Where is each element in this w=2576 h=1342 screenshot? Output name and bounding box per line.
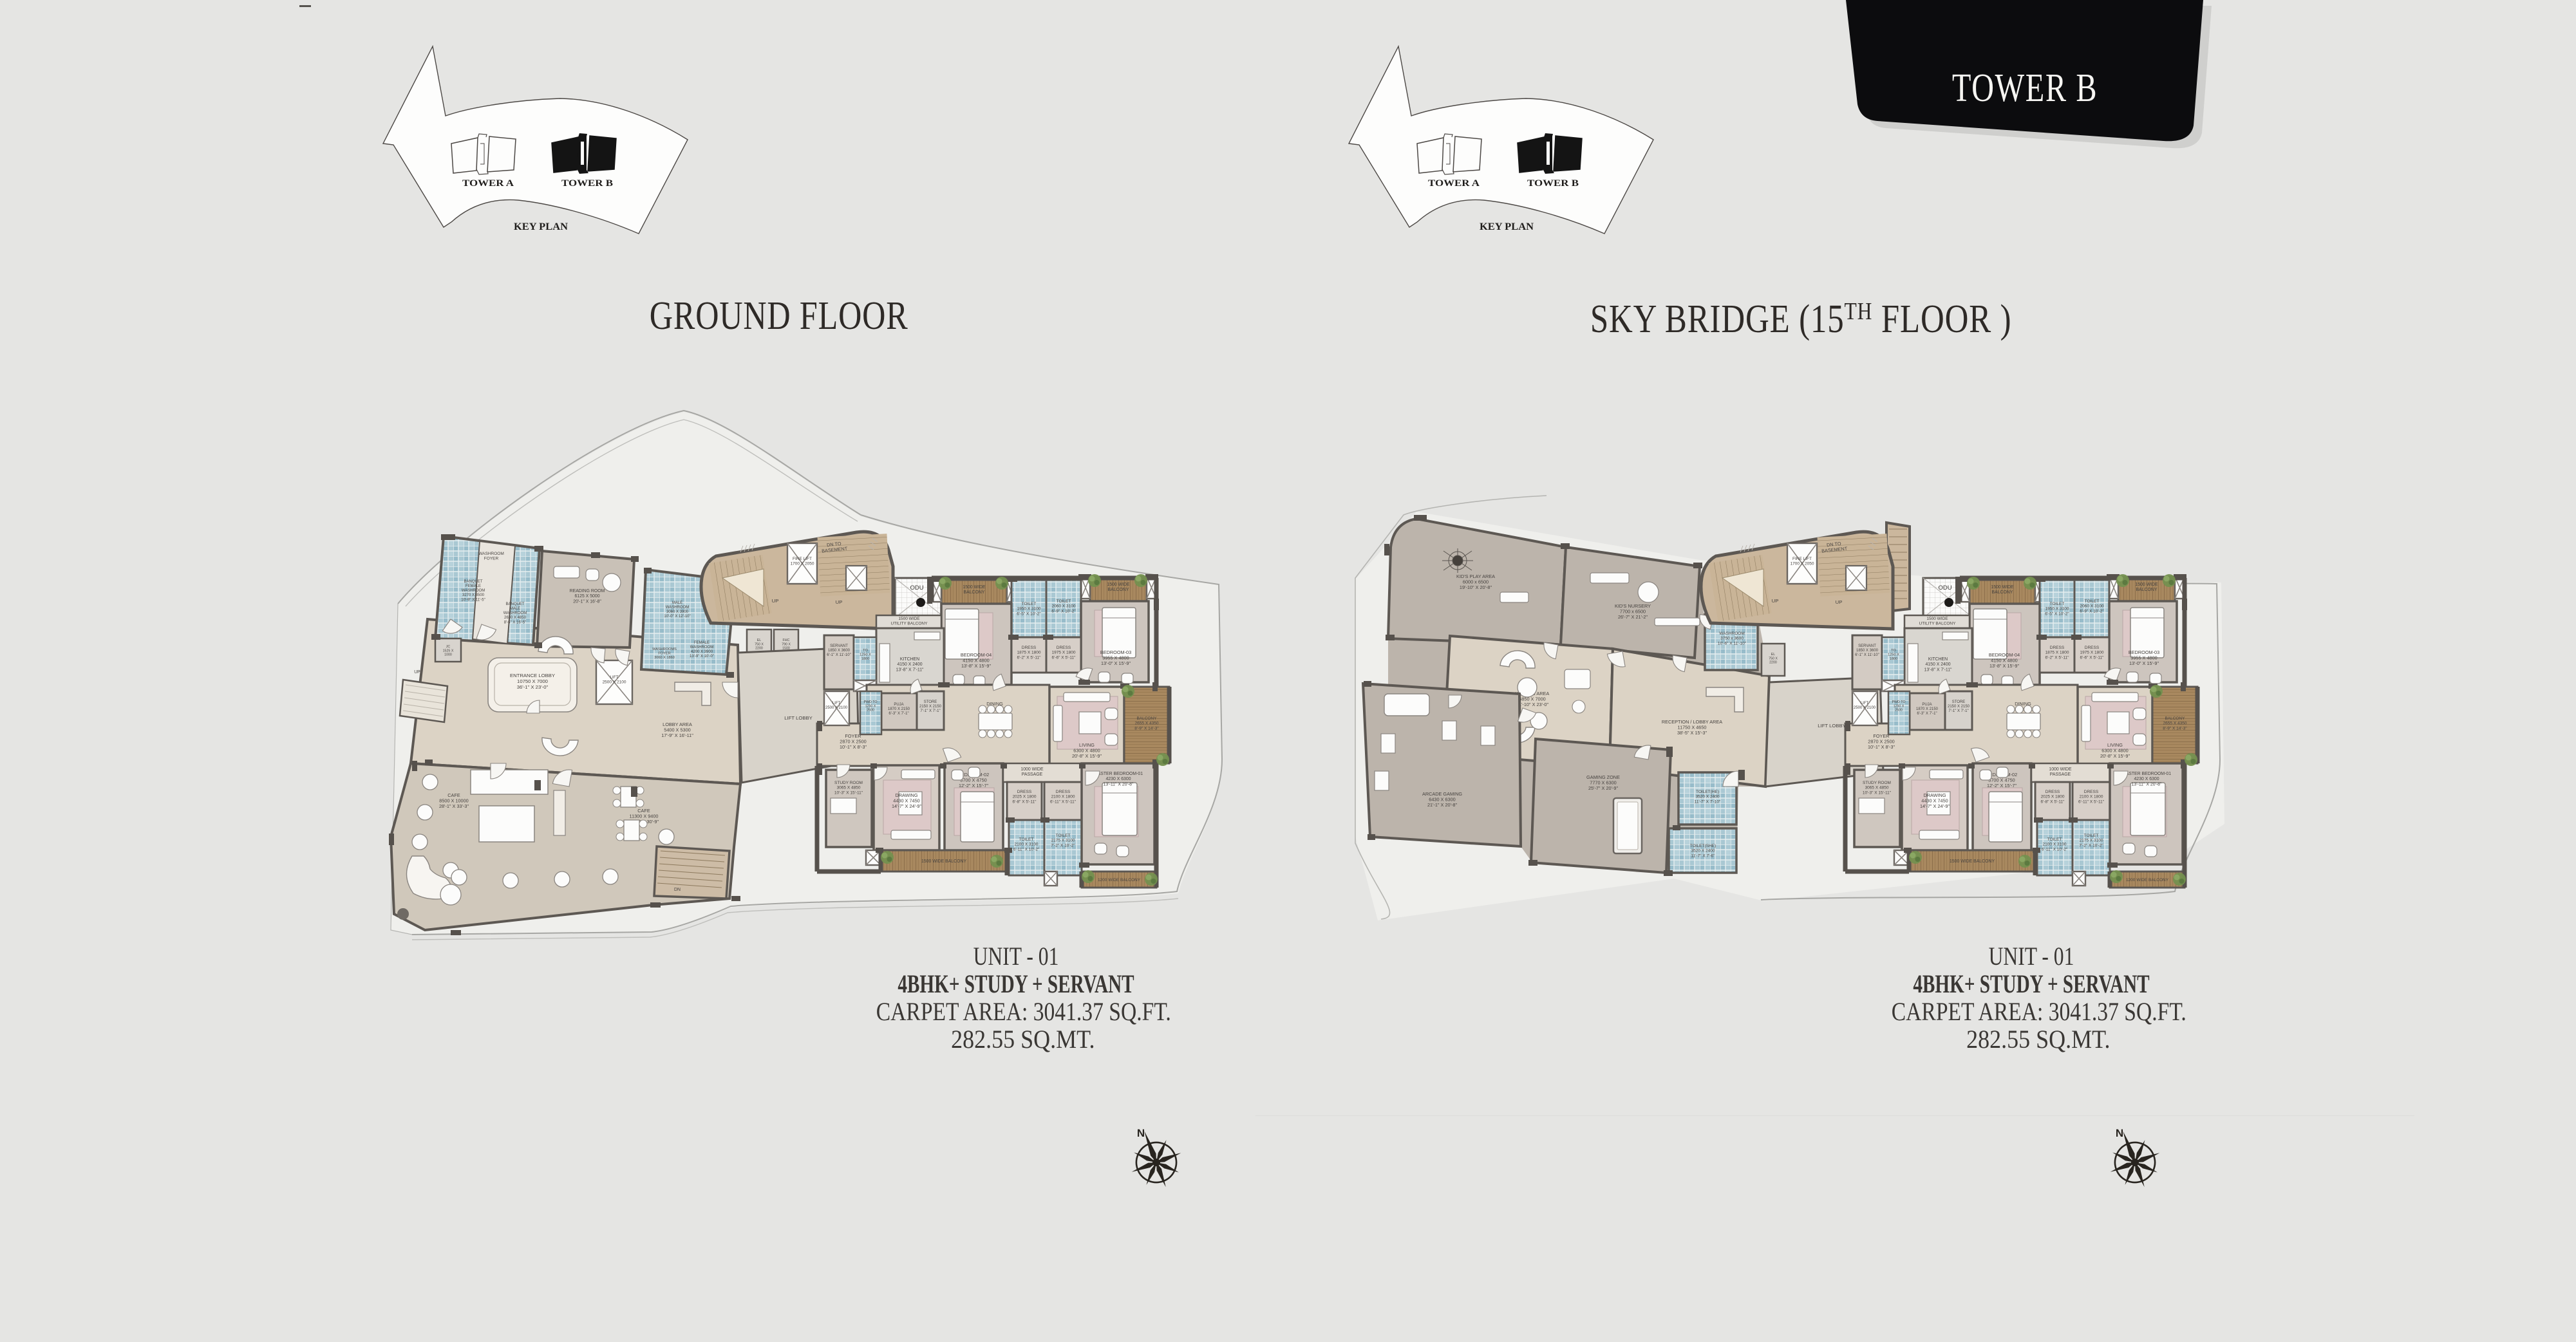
svg-text:1500 WIDEBALCONY: 1500 WIDEBALCONY [1107,582,1130,592]
svg-text:TOILET(SHE)3520 X 240011'-7" X: TOILET(SHE)3520 X 240011'-7" X 7'-6" [1690,844,1716,858]
svg-text:READING ROOM6125 X 500020'-1": READING ROOM6125 X 500020'-1" X 16'-8" [570,589,605,604]
svg-text:KID'S NURSERY7700 x 650026'-7": KID'S NURSERY7700 x 650026'-7" X 21'-2" [1615,603,1651,620]
svg-text:UP: UP [414,670,420,675]
svg-text:TOWER A: TOWER A [1428,178,1480,189]
svg-text:1200 WIDE BALCONY: 1200 WIDE BALCONY [1098,878,1141,882]
svg-text:DRAWING4430 X 745014'-7" X 24': DRAWING4430 X 745014'-7" X 24'-9" [892,792,922,809]
svg-text:BEDROOM-033955 X 480013'-0" X: BEDROOM-033955 X 480013'-0" X 15'-9" [1100,649,1131,666]
svg-text:UP: UP [772,598,779,604]
svg-text:N: N [1137,1127,1145,1139]
svg-text:N: N [2116,1127,2123,1139]
svg-text:LIFT LOBBY: LIFT LOBBY [784,715,812,721]
svg-text:1500 WIDEBALCONY: 1500 WIDEBALCONY [963,585,986,595]
svg-text:1000 WIDEPASSAGE: 1000 WIDEPASSAGE [1020,767,1044,777]
svg-text:BALCONY2655 X 43508'-9" X 14'-: BALCONY2655 X 43508'-9" X 14'-3" [1134,716,1159,731]
svg-text:TOWER B: TOWER B [1527,178,1579,189]
svg-text:LOBBY AREA5400 X 530017'-9" X: LOBBY AREA5400 X 530017'-9" X 16'-11" [661,722,693,738]
svg-text:KEY PLAN: KEY PLAN [514,221,568,232]
svg-text:WASHROOM3750 x 360010'-6" X 11: WASHROOM3750 x 360010'-6" X 11'-10" [1718,631,1747,646]
svg-text:BANQUETFEMALEWASHROOM3270 X 35: BANQUETFEMALEWASHROOM3270 X 350010'-9" X… [461,580,485,602]
svg-text:STUDY ROOM3065 X 485010'-3" X: STUDY ROOM3065 X 485010'-3" X 15'-11" [834,781,863,795]
svg-text:1500 WIDE BALCONY: 1500 WIDE BALCONY [921,859,966,864]
svg-text:KEY PLAN: KEY PLAN [1480,221,1534,232]
svg-text:TOWER B: TOWER B [561,178,613,189]
svg-text:TOWER A: TOWER A [462,178,514,189]
svg-text:GAMING ZONE7770 X 630025'-7" X: GAMING ZONE7770 X 630025'-7" X 20'-9" [1586,774,1620,791]
svg-text:FHC790 X1500: FHC790 X1500 [782,638,791,651]
svg-text:LIFT LOBBY: LIFT LOBBY [1818,723,1845,729]
svg-text:DN: DN [674,888,681,892]
svg-text:SERVANT1850 X 36006'-1" X 11'-: SERVANT1850 X 36006'-1" X 11'-10" [827,644,851,657]
svg-text:BANQUETMALEWASHROOM2630 X 4850: BANQUETMALEWASHROOM2630 X 48508'-6" X 16… [503,602,527,624]
svg-text:FIRE LIFT1700 X 2050: FIRE LIFT1700 X 2050 [791,557,814,566]
svg-text:BEDROOM-044150 X 480013'-8" X: BEDROOM-044150 X 480013'-8" X 15'-9" [961,652,992,669]
svg-text:TOILET(HE)3520 X 240011'-7" X: TOILET(HE)3520 X 240011'-7" X 7'-10" [1695,790,1721,804]
svg-text:ODU: ODU [910,584,923,592]
svg-text:UP: UP [836,599,843,605]
